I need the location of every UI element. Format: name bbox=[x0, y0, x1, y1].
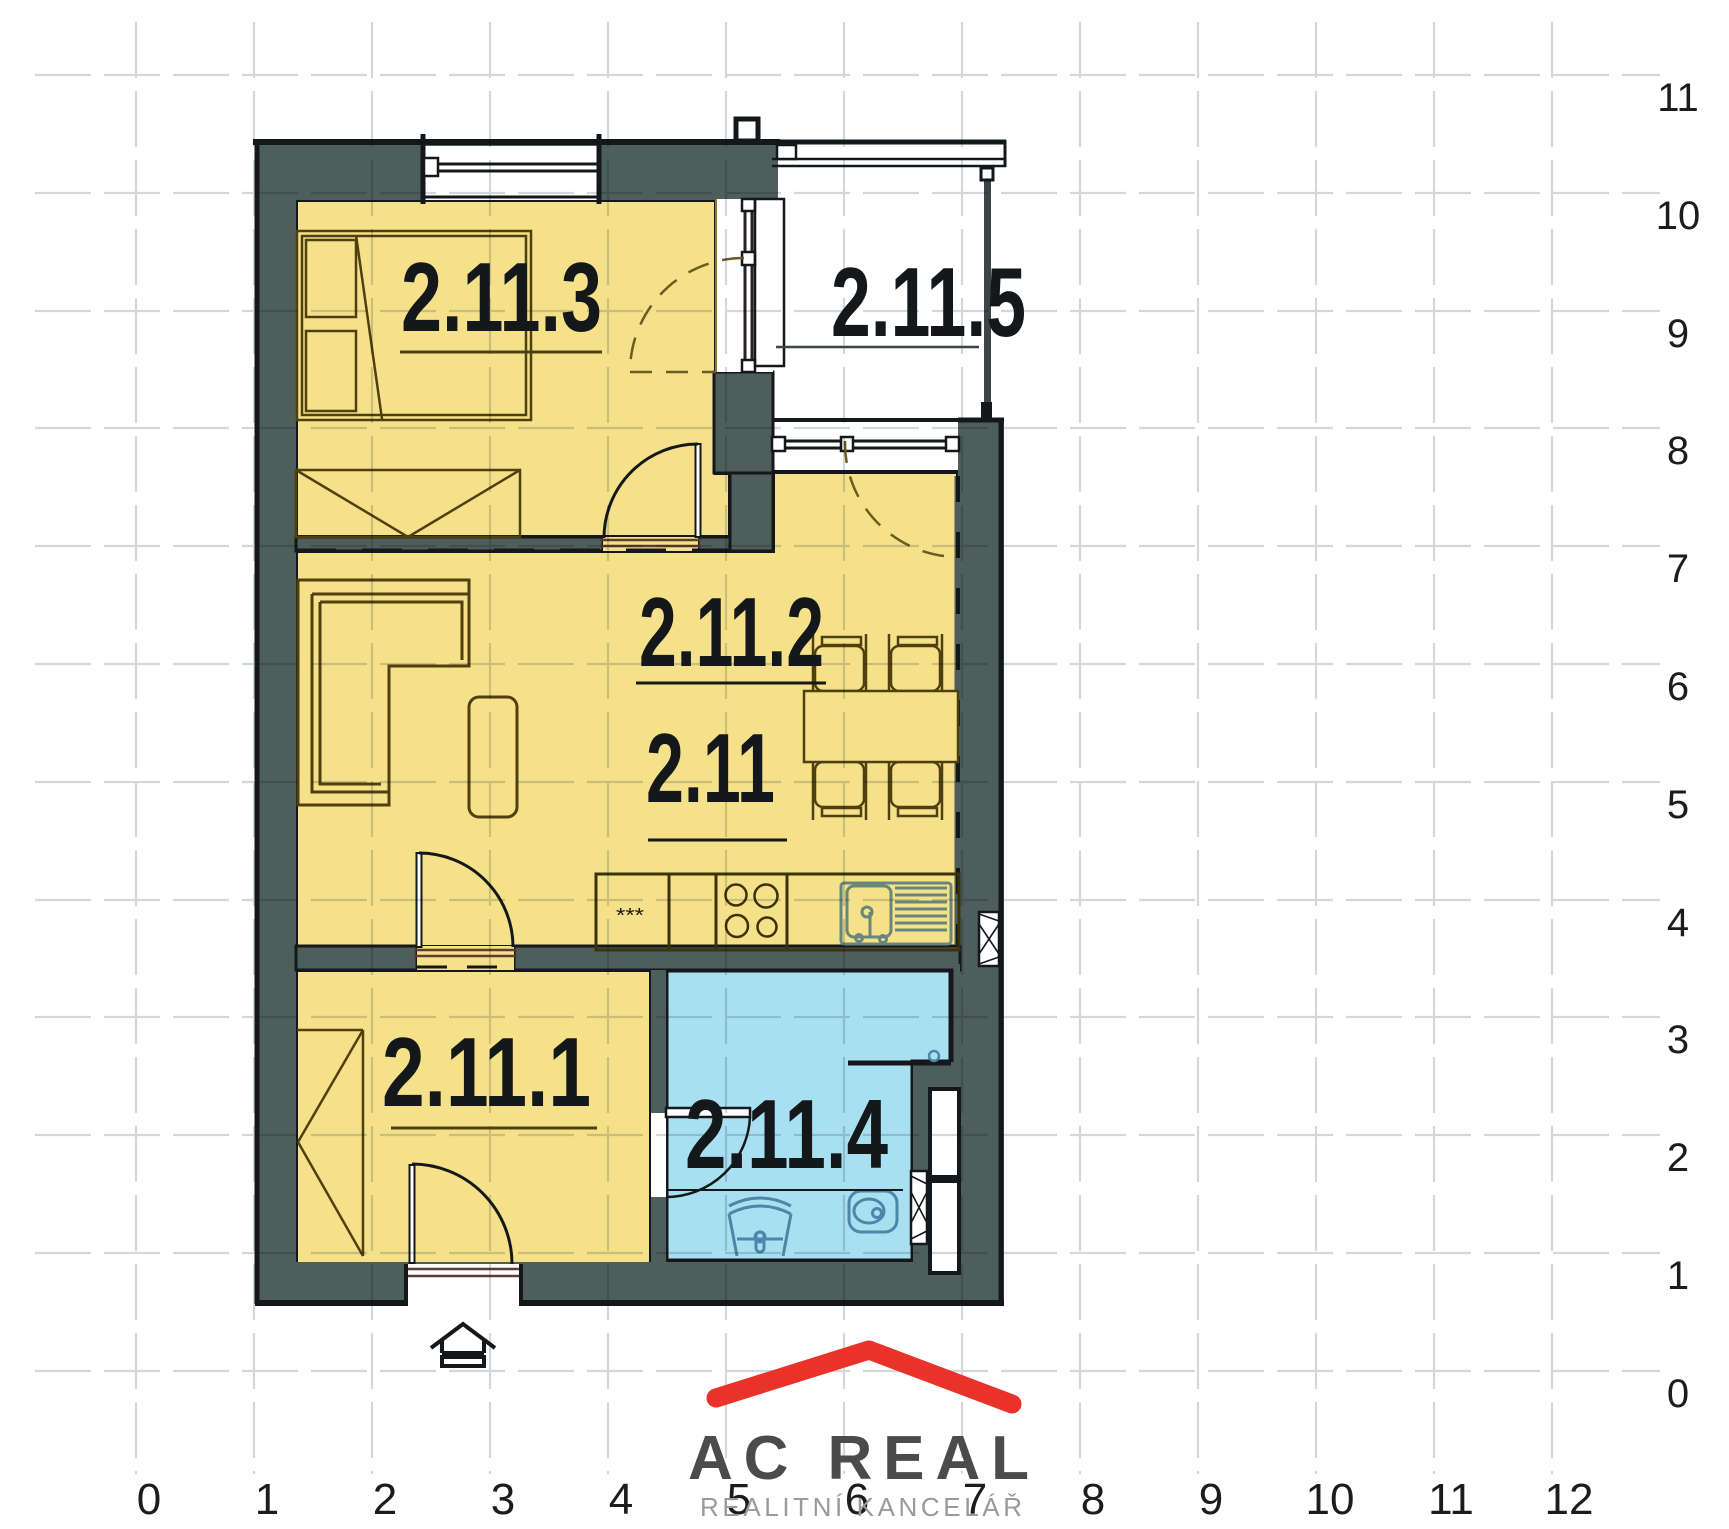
svg-text:5: 5 bbox=[1667, 783, 1689, 827]
svg-text:4: 4 bbox=[1667, 901, 1689, 945]
svg-text:11: 11 bbox=[1657, 76, 1699, 120]
svg-text:4: 4 bbox=[609, 1475, 633, 1524]
svg-text:1: 1 bbox=[255, 1475, 279, 1524]
svg-text:0: 0 bbox=[1667, 1372, 1689, 1416]
svg-text:2.11.5: 2.11.5 bbox=[831, 247, 1026, 357]
svg-text:2.11.4: 2.11.4 bbox=[685, 1079, 888, 1189]
svg-text:1: 1 bbox=[1667, 1254, 1689, 1298]
svg-text:11: 11 bbox=[1428, 1475, 1474, 1524]
svg-text:2: 2 bbox=[373, 1475, 397, 1524]
svg-text:2.11.2: 2.11.2 bbox=[639, 577, 824, 687]
svg-text:9: 9 bbox=[1199, 1475, 1223, 1524]
svg-text:REALITNÍ KANCELÁŘ: REALITNÍ KANCELÁŘ bbox=[700, 1492, 1022, 1522]
svg-text:***: *** bbox=[616, 905, 644, 927]
svg-text:3: 3 bbox=[491, 1475, 515, 1524]
svg-text:6: 6 bbox=[1667, 665, 1689, 709]
svg-text:3: 3 bbox=[1667, 1018, 1689, 1062]
svg-text:9: 9 bbox=[1667, 312, 1689, 356]
svg-text:2: 2 bbox=[1667, 1136, 1689, 1180]
svg-text:8: 8 bbox=[1667, 429, 1689, 473]
svg-text:0: 0 bbox=[137, 1475, 161, 1524]
svg-text:12: 12 bbox=[1545, 1475, 1594, 1524]
svg-text:2.11: 2.11 bbox=[646, 713, 775, 823]
svg-text:10: 10 bbox=[1306, 1475, 1355, 1524]
svg-text:2.11.1: 2.11.1 bbox=[382, 1017, 591, 1127]
svg-text:2.11.3: 2.11.3 bbox=[401, 242, 602, 352]
svg-text:10: 10 bbox=[1656, 194, 1701, 238]
svg-text:7: 7 bbox=[1667, 547, 1689, 591]
svg-text:8: 8 bbox=[1081, 1475, 1105, 1524]
